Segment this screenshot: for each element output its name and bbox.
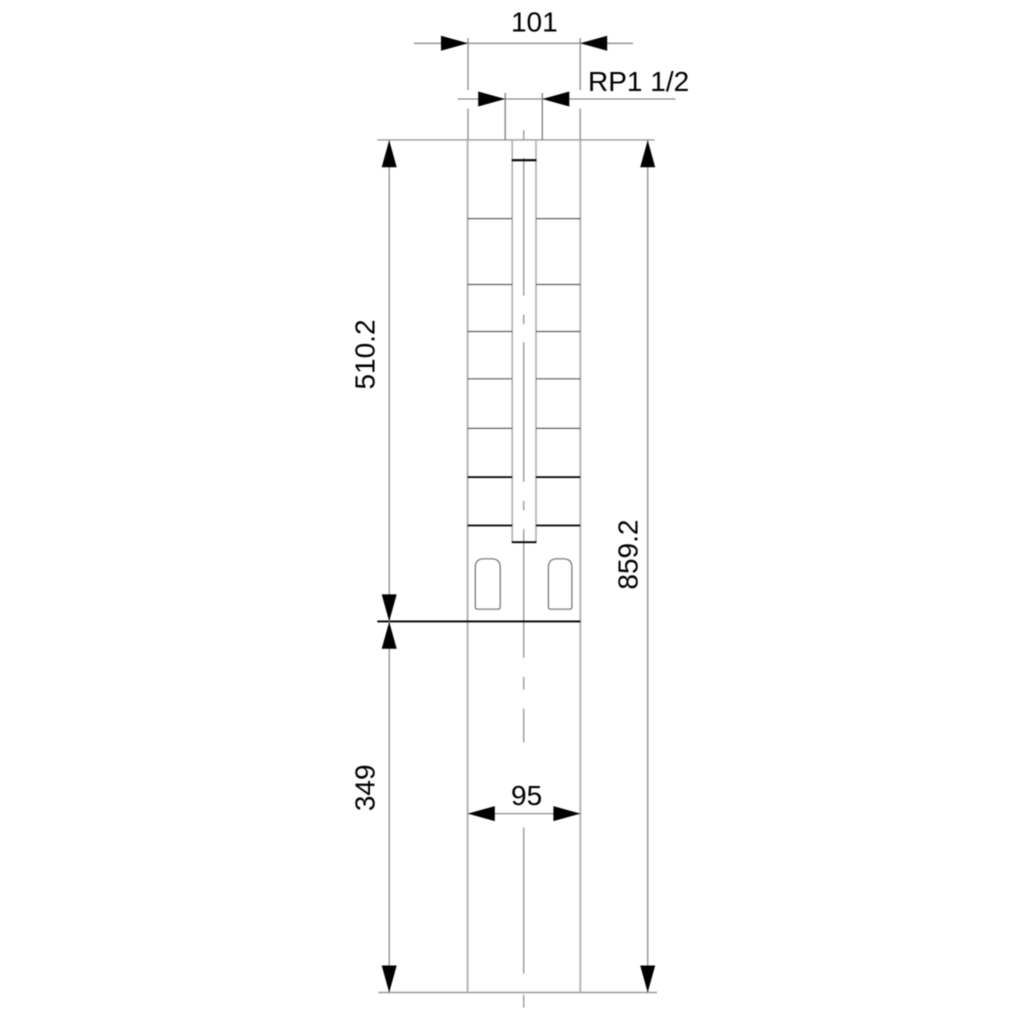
svg-text:349: 349 — [350, 764, 381, 811]
svg-text:510.2: 510.2 — [350, 319, 381, 389]
svg-text:859.2: 859.2 — [612, 520, 643, 590]
svg-text:101: 101 — [511, 7, 558, 38]
svg-text:95: 95 — [511, 780, 542, 811]
svg-text:RP1 1/2: RP1 1/2 — [588, 66, 689, 97]
